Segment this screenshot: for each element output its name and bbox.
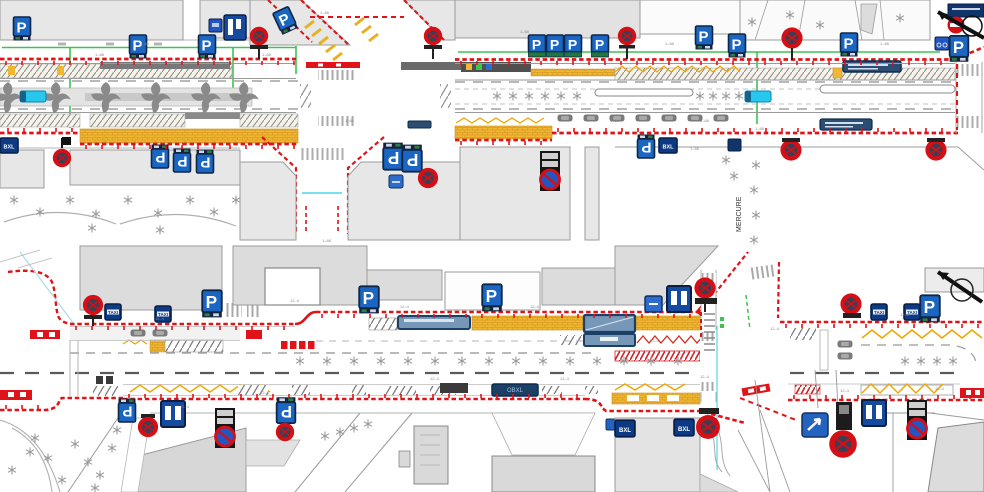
svg-text:1–68: 1–68	[520, 29, 530, 34]
svg-text:1–68: 1–68	[690, 146, 700, 151]
svg-text:1–68: 1–68	[320, 10, 330, 15]
svg-text:1–68: 1–68	[322, 238, 332, 243]
svg-text:12–4: 12–4	[840, 388, 850, 393]
svg-text:1–68: 1–68	[345, 118, 355, 123]
svg-text:1–68: 1–68	[700, 118, 710, 123]
svg-text:1–68: 1–68	[262, 52, 272, 57]
svg-text:12–4: 12–4	[400, 304, 410, 309]
svg-text:12–4: 12–4	[530, 304, 540, 309]
svg-text:1–68: 1–68	[665, 41, 675, 46]
svg-text:12–4: 12–4	[560, 376, 570, 381]
svg-text:12–4: 12–4	[700, 374, 710, 379]
svg-text:1–68: 1–68	[610, 118, 620, 123]
svg-text:12–4: 12–4	[430, 376, 440, 381]
svg-text:1–68: 1–68	[755, 126, 765, 131]
svg-text:12–4: 12–4	[900, 312, 910, 317]
svg-text:12–4: 12–4	[770, 326, 780, 331]
svg-text:OBXL: OBXL	[507, 388, 524, 394]
svg-text:12–4: 12–4	[935, 386, 945, 391]
svg-text:12–4: 12–4	[260, 390, 270, 395]
svg-text:12–4: 12–4	[155, 316, 165, 321]
svg-text:12–4: 12–4	[650, 338, 660, 343]
svg-text:MERCURE: MERCURE	[736, 196, 743, 232]
svg-text:12–4: 12–4	[180, 404, 190, 409]
svg-text:1–68: 1–68	[140, 41, 150, 46]
svg-text:1–68: 1–68	[95, 52, 105, 57]
svg-text:12–4: 12–4	[290, 298, 300, 303]
svg-text:1–68: 1–68	[880, 41, 890, 46]
